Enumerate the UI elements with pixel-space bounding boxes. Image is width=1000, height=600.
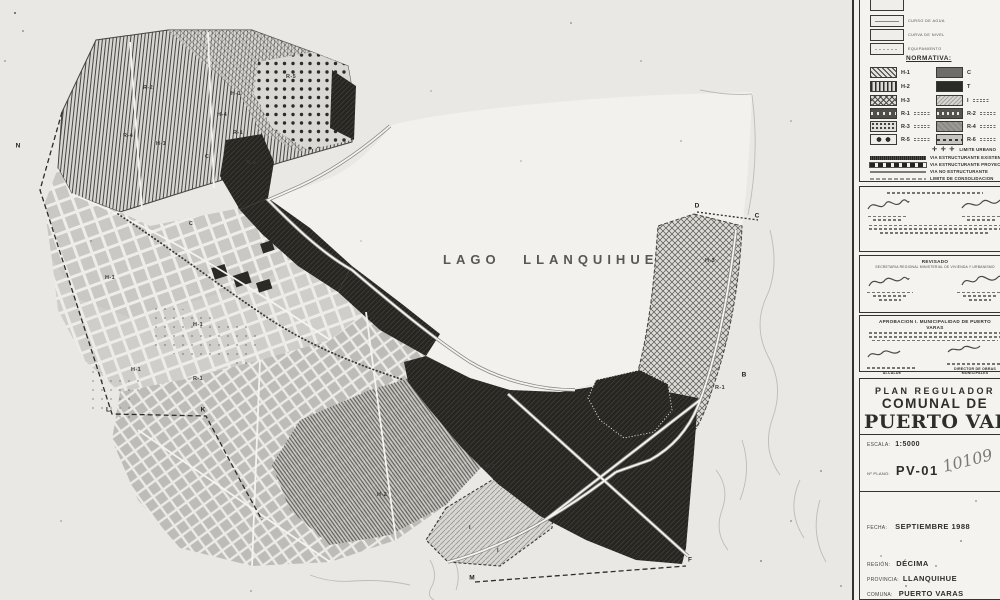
via-label: VIA NO ESTRUCTURANTE (930, 169, 988, 174)
t-swatch (936, 81, 963, 92)
symbol-swatch (870, 0, 904, 11)
symbol-label: CURVA DE NIVEL (908, 33, 945, 37)
legend-symbol-row (870, 0, 908, 11)
approval-box-municipal: APROBACION I. MUNICIPALIDAD DE PUERTO VA… (859, 315, 1000, 372)
via-proyectada-swatch (870, 163, 926, 167)
signature-scribble (866, 348, 902, 360)
via-label: VIA ESTRUCTURANTE EXISTENTE (930, 155, 1000, 160)
r5-swatch (870, 134, 897, 145)
urban-limit-label: LIMITE URBANO (959, 147, 996, 152)
fine-print (980, 125, 997, 128)
urban-limit-row: ✛ ✛ ✛ LIMITE URBANO (932, 146, 996, 153)
alcalde-label: ALCALDE (866, 371, 918, 375)
fine-print (914, 112, 931, 115)
fecha-label: FECHA: (867, 525, 887, 531)
fine-print (980, 112, 997, 115)
city-map-drawing (0, 0, 855, 600)
plano-value: PV-01 (896, 463, 939, 478)
approval-box-seremi (859, 186, 1000, 252)
legend-symbol-row: CURSO DE AGUA (870, 15, 945, 27)
zone-code: C (967, 70, 971, 76)
i-swatch (936, 95, 963, 106)
h1-swatch (870, 67, 897, 78)
watercourse-swatch (870, 15, 904, 27)
municipal-title: APROBACION I. MUNICIPALIDAD DE PUERTO VA… (876, 319, 994, 330)
zone-code: H-3 (901, 98, 910, 104)
equipment-swatch (870, 43, 904, 55)
r3-swatch (870, 121, 897, 132)
legend-box: CURSO DE AGUA CURVA DE NIVEL EQUIPAMIENT… (859, 0, 1000, 182)
urban-limit-symbol: ✛ ✛ ✛ (932, 146, 955, 153)
via-label: LIMITE DE CONSOLIDACION (930, 176, 994, 181)
zone-code: R-2 (967, 111, 976, 117)
c-swatch (936, 67, 963, 78)
normativa-heading: NORMATIVA: (906, 55, 952, 62)
handwritten-plan-number: 10109 (940, 445, 994, 476)
zone-code: R-6 (967, 137, 976, 143)
zone-code: R-1 (901, 111, 910, 117)
via-no-estructurante-swatch (870, 171, 926, 173)
zone-code: R-4 (967, 124, 976, 130)
plan-title-line1: PLAN REGULADOR (860, 386, 1000, 396)
signature-scribble (960, 196, 1000, 214)
symbol-label: EQUIPAMIENTO (908, 47, 942, 51)
escala-label: ESCALA: (867, 442, 890, 448)
signature-scribble (866, 196, 910, 214)
legend-symbol-row: CURVA DE NIVEL (870, 29, 945, 41)
plan-title-line3: PUERTO VARAS (864, 411, 1000, 433)
fine-print (914, 125, 931, 128)
via-label: VIA ESTRUCTURANTE PROYECTADA (930, 162, 1000, 167)
signature-scribble (946, 344, 982, 356)
r2-swatch (936, 108, 963, 119)
signature-scribble (960, 272, 1000, 290)
region-label: REGIÓN: (867, 562, 890, 568)
via-row: VIA NO ESTRUCTURANTE (870, 169, 988, 174)
plano-label: Nº PLANO: (867, 471, 890, 476)
via-row: LIMITE DE CONSOLIDACION (870, 176, 994, 181)
r4-swatch (936, 121, 963, 132)
signature-scribble (866, 272, 910, 290)
title-block: PLAN REGULADOR COMUNAL DE PUERTO VARAS E… (859, 378, 1000, 600)
via-row: VIA ESTRUCTURANTE PROYECTADA (870, 162, 1000, 167)
comuna-label: COMUNA: (867, 592, 893, 598)
legend-symbol-row: EQUIPAMIENTO (870, 43, 942, 55)
zone-code: I (967, 98, 969, 104)
region-value: DÉCIMA (896, 559, 929, 568)
escala-value: 1:5000 (895, 441, 920, 448)
r6-swatch (936, 134, 963, 145)
zone-code: R-3 (901, 124, 910, 130)
revisado-subtitle: SECRETARIA REGIONAL MINISTERIAL DE VIVIE… (866, 265, 1000, 269)
fine-print (973, 99, 990, 102)
zone-code: H-2 (901, 84, 910, 90)
sheet-margin-panel: CURSO DE AGUA CURVA DE NIVEL EQUIPAMIENT… (852, 0, 1000, 600)
zone-code: R-5 (901, 137, 910, 143)
provincia-value: LLANQUIHUE (903, 574, 957, 583)
h2-swatch (870, 81, 897, 92)
via-row: VIA ESTRUCTURANTE EXISTENTE (870, 155, 1000, 160)
fine-print (914, 138, 931, 141)
scanned-plan-sheet: LAGO LLANQUIHUE R-2R-5H-1H-4R-4H-1R-1CR-… (0, 0, 1000, 600)
scan-speckle (0, 0, 2, 2)
h3-swatch (870, 95, 897, 106)
contour-swatch (870, 29, 904, 41)
fine-print (980, 138, 997, 141)
r1-swatch (870, 108, 897, 119)
provincia-label: PROVINCIA: (867, 577, 899, 583)
zone-code: H-1 (901, 70, 910, 76)
approval-box-revisado: REVISADO SECRETARIA REGIONAL MINISTERIAL… (859, 255, 1000, 313)
via-existente-swatch (870, 156, 926, 160)
symbol-label: CURSO DE AGUA (908, 19, 945, 23)
fecha-value: SEPTIEMBRE 1988 (895, 522, 970, 531)
limite-consolidacion-swatch (870, 178, 926, 180)
obras-label: DIRECTOR DE OBRAS MUNICIPALES (946, 367, 1000, 375)
plan-title-line2: COMUNAL DE (860, 396, 1000, 411)
comuna-value: PUERTO VARAS (899, 589, 964, 598)
zone-code: T (967, 84, 970, 90)
